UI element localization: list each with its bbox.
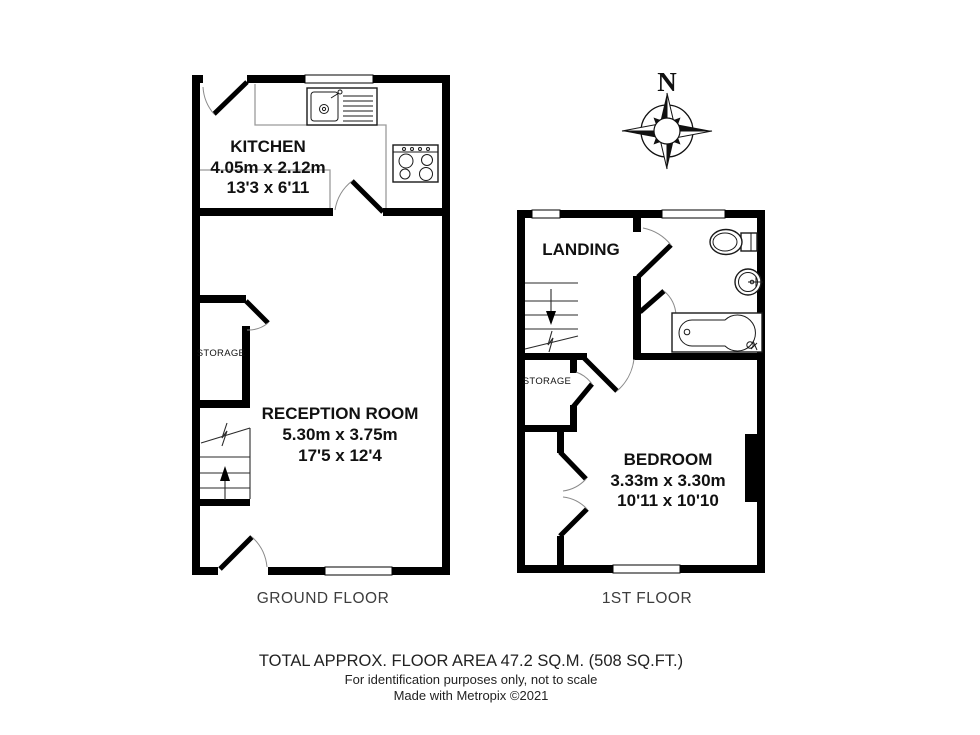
kitchen-window — [305, 75, 373, 83]
reception-label: RECEPTION ROOM — [262, 404, 419, 423]
kitchen-door-arc — [335, 181, 352, 210]
bathroom-inner-door-arc — [664, 291, 676, 315]
stove-icon — [393, 145, 438, 182]
first-floor-walls — [517, 210, 765, 573]
first-floor-plan: LANDING STORAGE BEDROOM 3.33m x 3.30m 10… — [517, 210, 765, 607]
wardrobe-door-top-leaf — [560, 452, 586, 479]
disclaimer-text: For identification purposes only, not to… — [345, 672, 598, 687]
floorplan-drawing: KITCHEN 4.05m x 2.12m 13'3 x 6'11 STORAG… — [0, 0, 980, 735]
first-storage-label: STORAGE — [523, 376, 571, 387]
bedroom-door-arc — [617, 359, 634, 391]
reception-dim-metric: 5.30m x 3.75m — [282, 425, 397, 444]
ground-floor-plan: KITCHEN 4.05m x 2.12m 13'3 x 6'11 STORAG… — [192, 75, 450, 607]
floorplan-page: KITCHEN 4.05m x 2.12m 13'3 x 6'11 STORAG… — [0, 0, 980, 735]
kitchen-dim-imperial: 13'3 x 6'11 — [227, 178, 310, 197]
sink-icon — [307, 88, 377, 125]
ground-floor-caption: GROUND FLOOR — [257, 590, 390, 607]
reception-door-arc — [252, 537, 267, 567]
first-storage-door-arc — [576, 372, 592, 384]
reception-window — [325, 567, 392, 575]
bedroom-label: BEDROOM — [624, 450, 713, 469]
wardrobe-door-bottom-arc — [563, 497, 587, 509]
reception-door-leaf — [220, 537, 252, 569]
compass-rose-icon: N — [622, 67, 712, 169]
bathroom-window — [662, 210, 725, 218]
bath-icon — [672, 313, 762, 352]
entrance-door-arc — [203, 87, 214, 114]
storage-door-arc — [247, 323, 268, 330]
stairs-up-icon — [200, 423, 250, 500]
footer: TOTAL APPROX. FLOOR AREA 47.2 SQ.M. (508… — [259, 652, 683, 703]
kitchen-door-leaf — [352, 181, 383, 212]
stairs-down-icon — [525, 283, 578, 352]
kitchen-dim-metric: 4.05m x 2.12m — [210, 158, 325, 177]
compass-north-label: N — [657, 67, 677, 97]
bedroom-dim-imperial: 10'11 x 10'10 — [617, 491, 719, 510]
total-area-text: TOTAL APPROX. FLOOR AREA 47.2 SQ.M. (508… — [259, 652, 683, 670]
bathroom-door-arc — [643, 228, 671, 245]
ground-storage-label: STORAGE — [197, 348, 245, 359]
bedroom-dim-metric: 3.33m x 3.30m — [610, 471, 725, 490]
landing-label: LANDING — [542, 240, 619, 259]
wardrobe-door-bottom-leaf — [560, 509, 587, 536]
first-floor-caption: 1ST FLOOR — [602, 590, 692, 607]
storage-door-leaf — [246, 301, 268, 323]
toilet-icon — [710, 230, 757, 255]
wardrobe-door-top-arc — [563, 479, 586, 491]
bathroom-door-leaf — [638, 245, 671, 277]
first-storage-door-leaf — [573, 384, 592, 407]
kitchen-label: KITCHEN — [230, 137, 306, 156]
reception-dim-imperial: 17'5 x 12'4 — [298, 446, 382, 465]
credit-text: Made with Metropix ©2021 — [394, 688, 549, 703]
bathroom-inner-door-leaf — [640, 291, 664, 312]
landing-window — [532, 210, 560, 218]
entrance-door-leaf — [214, 82, 247, 114]
bedroom-window — [613, 565, 680, 573]
